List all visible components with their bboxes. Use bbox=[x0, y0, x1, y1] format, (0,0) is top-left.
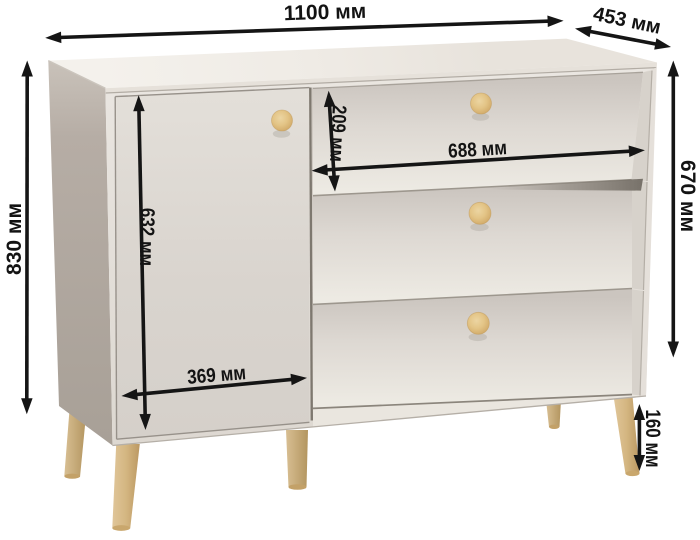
svg-text:160 мм: 160 мм bbox=[640, 409, 664, 467]
svg-text:688 мм: 688 мм bbox=[447, 136, 507, 162]
svg-text:632 мм: 632 мм bbox=[136, 208, 160, 267]
svg-text:1100 мм: 1100 мм bbox=[283, 0, 366, 25]
svg-text:830 мм: 830 мм bbox=[3, 203, 26, 275]
svg-text:209 мм: 209 мм bbox=[326, 105, 352, 163]
svg-text:369 мм: 369 мм bbox=[186, 361, 247, 388]
svg-text:670 мм: 670 мм bbox=[676, 160, 699, 232]
